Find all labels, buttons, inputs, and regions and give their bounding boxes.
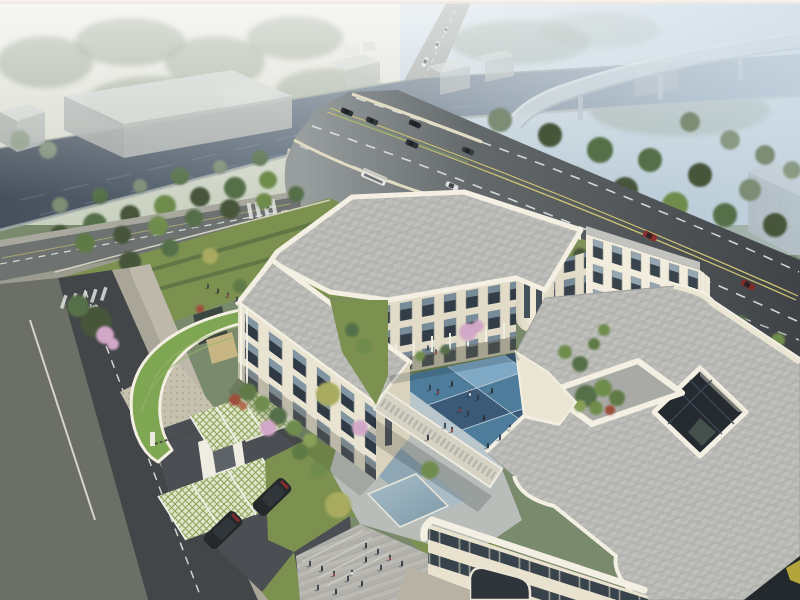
gate-pillar: [150, 432, 155, 446]
top-border-highlight: [0, 0, 800, 2]
aerial-rendering: [0, 0, 800, 600]
rendering-canvas: [0, 0, 800, 600]
